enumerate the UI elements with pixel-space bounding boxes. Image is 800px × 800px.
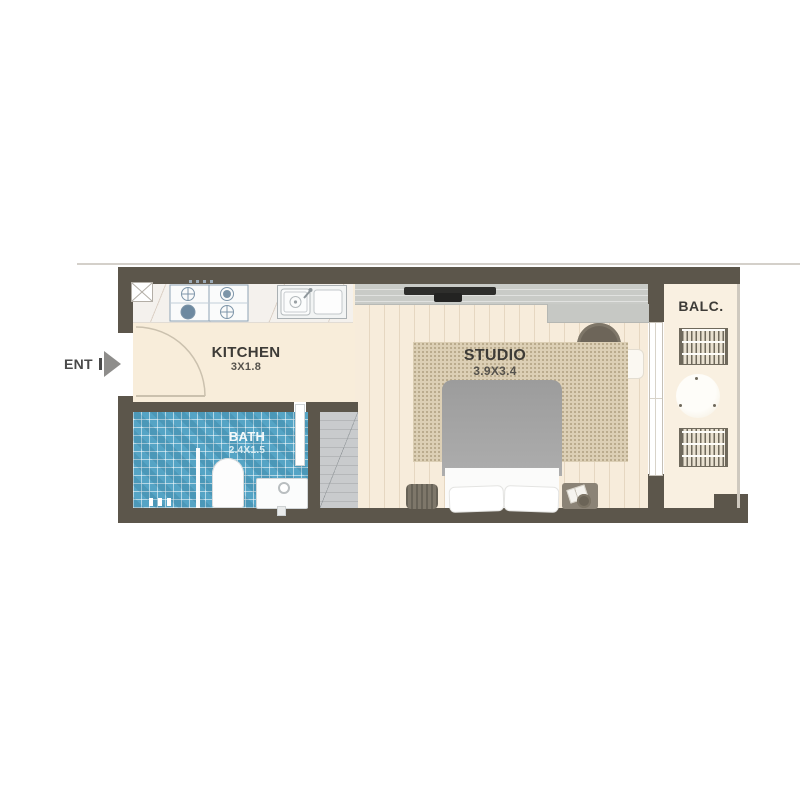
building-outline xyxy=(77,263,800,265)
wall-corner-bottom-right xyxy=(714,494,748,510)
studio-label: STUDIO 3.9X3.4 xyxy=(464,347,526,379)
kitchen-label: KITCHEN 3X1.8 xyxy=(212,344,281,374)
wall-left-lower xyxy=(118,396,133,523)
wardrobe-icon xyxy=(320,412,358,508)
studio-dimensions: 3.9X3.4 xyxy=(464,365,526,379)
balcony-chair-top-icon xyxy=(679,328,728,365)
entrance-label: ENT xyxy=(64,356,93,372)
balcony-table-icon xyxy=(676,374,720,418)
table-dot xyxy=(679,404,682,407)
floor-plan-canvas: KITCHEN 3X1.8 BATH 2.4X1.5 STUDIO 3.9X3.… xyxy=(0,0,800,800)
toilet-icon xyxy=(212,458,244,508)
pillow-left xyxy=(449,485,505,513)
kitchen-room-name: KITCHEN xyxy=(212,344,281,361)
clock-icon xyxy=(577,494,591,508)
nightstand-left xyxy=(406,484,438,509)
table-dot xyxy=(713,404,716,407)
table-dot xyxy=(695,377,698,380)
entrance-arrow-icon xyxy=(104,351,121,377)
shower-drain-icon xyxy=(149,498,173,506)
studio-room-name: STUDIO xyxy=(464,347,526,365)
wall-bath-top-right xyxy=(306,402,358,412)
kitchen-dimensions: 3X1.8 xyxy=(212,361,281,374)
tv-base-icon xyxy=(434,293,462,302)
bath-door xyxy=(295,404,305,466)
wall-bath-right xyxy=(308,412,320,508)
sliding-glass-door xyxy=(649,322,663,476)
wall-bottom xyxy=(118,508,748,523)
bath-sink-drain-icon xyxy=(277,506,286,516)
balcony-room-name: BALC. xyxy=(678,298,723,314)
desk xyxy=(547,304,649,323)
shaft-x-icon xyxy=(131,282,153,302)
kitchen-sink-icon xyxy=(277,285,347,319)
pillow-right xyxy=(504,485,560,513)
wall-balcony-stub-top xyxy=(648,284,664,322)
media-console xyxy=(355,284,648,305)
wall-bath-top-left xyxy=(133,402,294,412)
shower-screen xyxy=(196,448,200,508)
entry-door-swing-icon xyxy=(130,322,210,400)
balcony-railing xyxy=(737,284,740,508)
entrance-door-bar xyxy=(99,358,102,370)
bath-dimensions: 2.4X1.5 xyxy=(229,445,266,457)
balcony-label: BALC. xyxy=(678,298,723,314)
bed-duvet xyxy=(442,380,562,476)
bath-label: BATH 2.4X1.5 xyxy=(229,430,266,456)
balcony-chair-bottom-icon xyxy=(679,428,728,467)
stove-icon xyxy=(169,280,249,322)
service-shaft-icon xyxy=(131,282,153,302)
bath-sink-faucet-icon xyxy=(278,482,290,494)
wall-balcony-stub-bottom xyxy=(648,474,664,508)
bath-room-name: BATH xyxy=(229,430,266,445)
